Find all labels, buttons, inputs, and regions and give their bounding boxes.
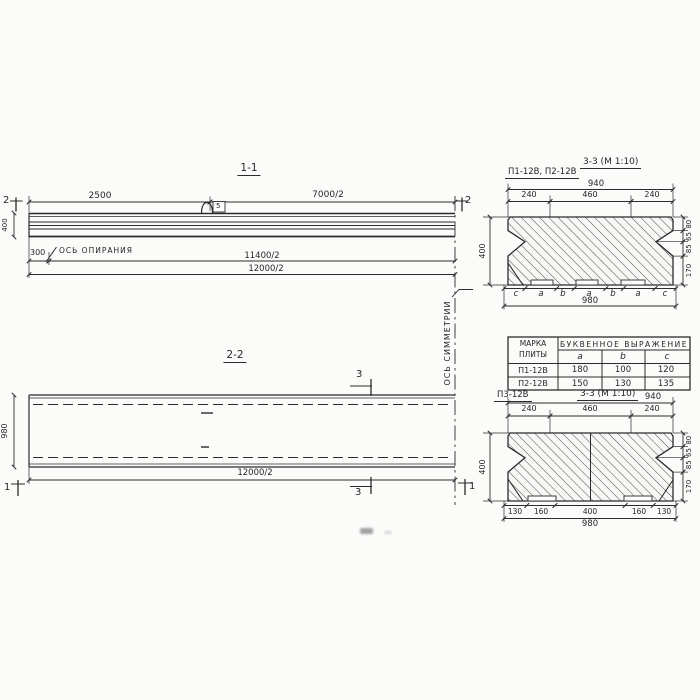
table-row1-c: 120: [658, 366, 674, 375]
section-1-1-lines: [10, 196, 468, 278]
lifting-loop: [202, 203, 213, 214]
plate-marks-label-top: П1-12В, П2-12В: [505, 168, 579, 179]
table-subheader-b: b: [620, 353, 626, 362]
dim-80-top: 80: [686, 217, 693, 231]
section-1-1-title: 1-1: [237, 163, 260, 176]
symmetry-axis-label: ОСЬ СИММЕТРИИ: [444, 294, 452, 392]
table-row1-mark: П1-12В: [518, 367, 548, 375]
drawing-linework: [0, 0, 700, 700]
plate-mark-label-bottom: П3-12В: [494, 391, 532, 402]
dim-460-top: 460: [582, 191, 597, 199]
table-row2-c: 135: [658, 380, 674, 389]
table-header-mark-line1: МАРКА: [520, 340, 547, 348]
letter-c-2: c: [663, 290, 668, 299]
dim-65-top: 65: [686, 231, 693, 242]
dim-170-top: 170: [686, 256, 693, 285]
dim-85-bottom: 85: [686, 458, 693, 472]
dim-65-bottom: 65: [686, 447, 693, 458]
dim-240-right-bottom: 240: [644, 405, 659, 413]
dim-980-bottom-section: 980: [582, 520, 598, 529]
dim-80-bottom: 80: [686, 433, 693, 447]
dim-400-bottom-section: 400: [479, 433, 487, 501]
dim-400-elevation: 400: [2, 213, 9, 237]
dim-130-left: 130: [508, 508, 522, 516]
letter-c-1: c: [514, 290, 519, 299]
dim-2500: 2500: [89, 192, 112, 201]
dim-12000-2-plan: 12000/2: [237, 469, 272, 478]
dim-240-right-top: 240: [644, 191, 659, 199]
dim-400-bottom-chain: 400: [583, 508, 597, 516]
dim-240-left-top: 240: [521, 191, 536, 199]
scan-artifact-2: [384, 531, 392, 534]
table-row2-b: 130: [615, 380, 631, 389]
section-3-3-bottom-title: 3-3 (М 1:10): [577, 390, 638, 401]
drawing-sheet: 1-1 2 2 2500 7000/2 400 300 ОСЬ ОПИРАНИЯ…: [0, 0, 700, 700]
dim-240-left-bottom: 240: [521, 405, 536, 413]
table-row2-a: 150: [572, 380, 588, 389]
dim-300: 300: [30, 249, 45, 257]
dim-130-right: 130: [657, 508, 671, 516]
dim-940-top: 940: [588, 180, 604, 189]
dim-980-top-section: 980: [582, 297, 598, 306]
bearing-axis-label: ОСЬ ОПИРАНИЯ: [59, 247, 133, 255]
section-marker-2-left: 2: [3, 196, 9, 206]
letter-b-1: b: [560, 290, 565, 299]
scan-artifact: [360, 528, 373, 534]
dim-980-plan: 980: [1, 395, 9, 467]
table-row2-mark: П2-12В: [518, 380, 548, 388]
dim-160-right: 160: [632, 508, 646, 516]
dim-11400-2: 11400/2: [244, 252, 279, 261]
section-2-2-title: 2-2: [223, 350, 246, 363]
dim-170-bottom: 170: [686, 472, 693, 501]
dim-85-top: 85: [686, 242, 693, 256]
dim-160-left: 160: [534, 508, 548, 516]
table-row1-a: 180: [572, 366, 588, 375]
section-marker-3-top: 3: [356, 370, 362, 380]
section-marker-1-right: 1: [469, 482, 475, 492]
section-marker-1-left: 1: [4, 483, 10, 493]
dim-12000-2-elevation: 12000/2: [248, 265, 283, 274]
section-marker-3-bottom: 3: [355, 488, 361, 498]
letter-b-2: b: [610, 290, 615, 299]
dim-460-bottom: 460: [582, 405, 597, 413]
letter-a-1: a: [538, 290, 543, 299]
dim-400-top-section: 400: [479, 217, 487, 285]
lifting-loop-tag: 5: [216, 203, 220, 210]
letter-a-3: a: [635, 290, 640, 299]
table-row1-b: 100: [615, 366, 631, 375]
table-subheader-a: a: [577, 353, 583, 362]
slab-cross-section-top: [508, 217, 673, 285]
section-3-3-bottom-lines: [483, 397, 688, 522]
table-subheader-c: c: [665, 353, 670, 362]
table-header-mark-line2: ПЛИТЫ: [519, 351, 547, 359]
dim-940-bottom: 940: [645, 393, 661, 402]
section-3-3-top-title: 3-3 (М 1:10): [580, 158, 641, 169]
table-header-group: БУКВЕННОЕ ВЫРАЖЕНИЕ: [560, 341, 688, 349]
dim-7000-2: 7000/2: [312, 191, 344, 200]
section-marker-2-right: 2: [465, 196, 471, 206]
